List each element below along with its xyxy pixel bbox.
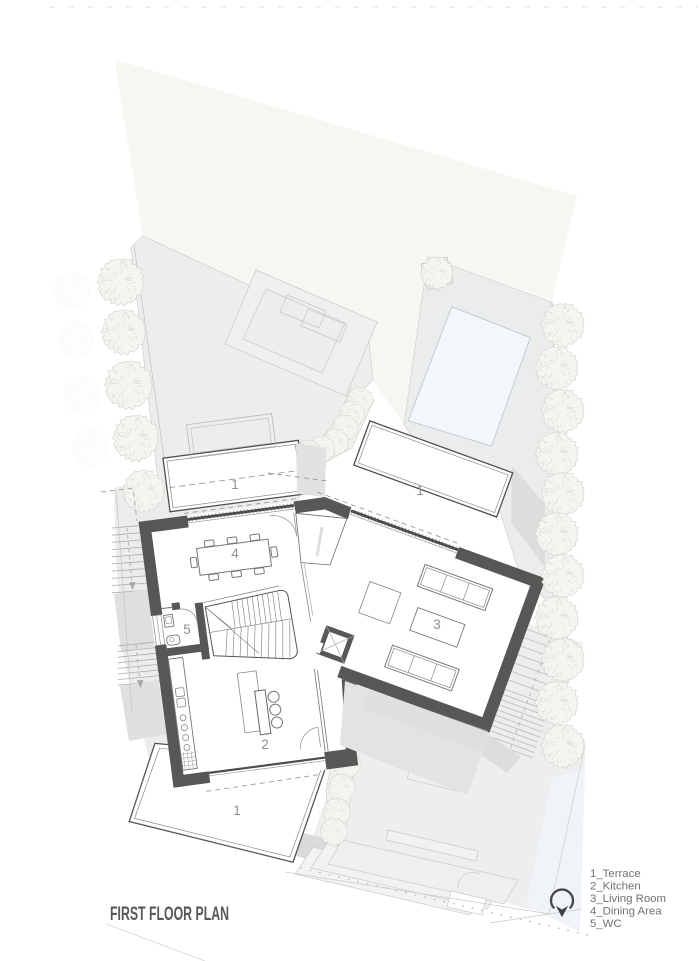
svg-text:4_Dining Area: 4_Dining Area	[590, 906, 662, 918]
svg-text:5: 5	[183, 622, 191, 637]
svg-text:1: 1	[233, 803, 241, 818]
svg-text:2_Kitchen: 2_Kitchen	[590, 881, 641, 893]
svg-text:3: 3	[433, 617, 441, 632]
svg-text:1_Terrace: 1_Terrace	[590, 868, 641, 880]
svg-text:5_WC: 5_WC	[590, 918, 622, 930]
svg-text:1: 1	[231, 477, 239, 492]
svg-text:1: 1	[416, 483, 424, 498]
svg-text:FIRST FLOOR PLAN: FIRST FLOOR PLAN	[110, 904, 229, 925]
svg-text:3_Living Room: 3_Living Room	[590, 893, 666, 905]
svg-text:2: 2	[261, 737, 269, 752]
svg-text:4: 4	[231, 546, 239, 561]
